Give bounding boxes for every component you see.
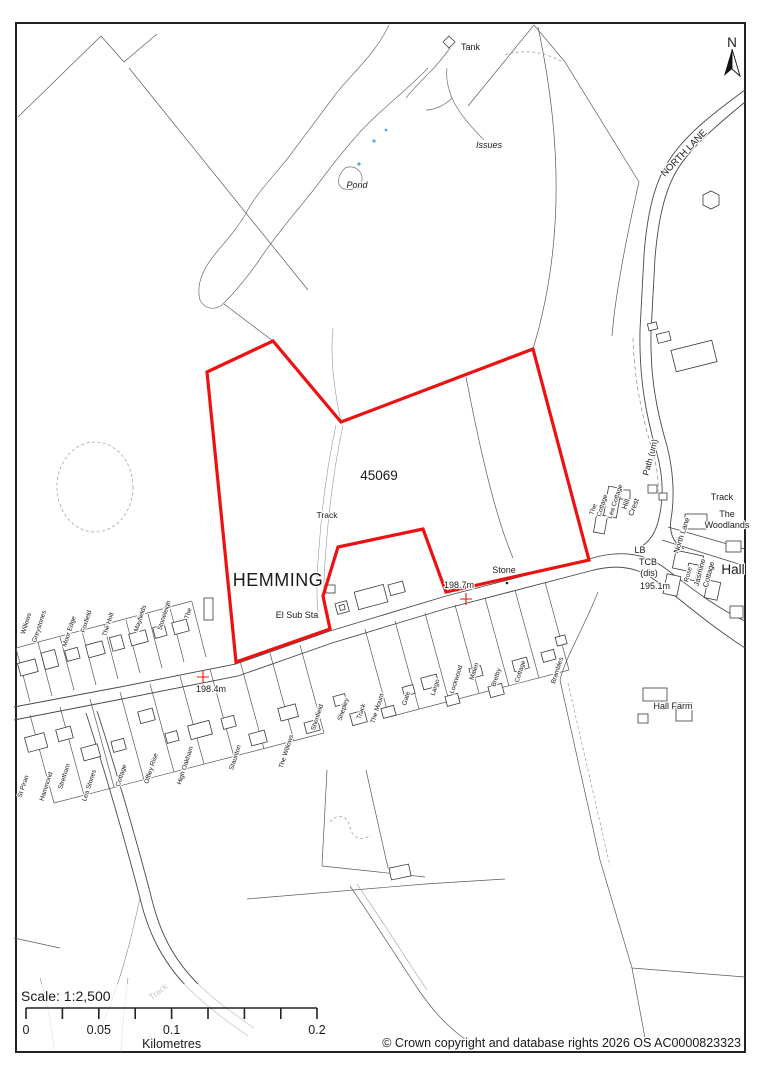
- label-issues: Issues: [476, 140, 503, 150]
- scale-tick-005: 0.05: [87, 1023, 111, 1037]
- north-arrow-label: N: [727, 35, 737, 50]
- label-woodlands-1: The: [719, 509, 735, 519]
- label-hall: Hall: [721, 562, 744, 577]
- scale-tick-02: 0.2: [308, 1023, 325, 1037]
- label-hall-farm: Hall Farm: [653, 701, 692, 711]
- label-tank: Tank: [461, 42, 481, 52]
- scale-bar: Scale: 1:2,500 0 0.05 0.1 0.2 Kilometres: [18, 984, 328, 1051]
- map-canvas: N Tank Issues Pond NORTH LANE Path (um) …: [0, 0, 764, 1080]
- site-name: HEMMING: [233, 570, 324, 590]
- label-stone: Stone: [492, 565, 516, 575]
- label-lb: LB: [634, 545, 645, 555]
- stone-marker: [506, 582, 509, 585]
- label-el-sub-sta: El Sub Sta: [276, 610, 319, 620]
- scale-tick-01: 0.1: [163, 1023, 180, 1037]
- scale-title: Scale: 1:2,500: [21, 988, 111, 1004]
- label-spot-195: 195.1m: [640, 581, 670, 591]
- parcel-number: 45069: [360, 468, 398, 483]
- scale-tick-0: 0: [23, 1023, 30, 1037]
- label-woodlands-2: Woodlands: [705, 520, 750, 530]
- label-track-mid: Track: [317, 510, 339, 520]
- label-spot-1987: 198.7m: [444, 580, 474, 590]
- map-sheet: N Tank Issues Pond NORTH LANE Path (um) …: [0, 0, 764, 1080]
- scale-unit: Kilometres: [142, 1037, 201, 1051]
- attribution: © Crown copyright and database rights 20…: [382, 1036, 741, 1050]
- label-tcb-2: (dis): [640, 568, 658, 578]
- label-tcb-1: TCB: [639, 557, 657, 567]
- hexagon-structure: [703, 191, 719, 209]
- label-spot-1984: 198.4m: [196, 684, 226, 694]
- label-pond: Pond: [346, 180, 368, 190]
- label-track-ne: Track: [711, 492, 734, 502]
